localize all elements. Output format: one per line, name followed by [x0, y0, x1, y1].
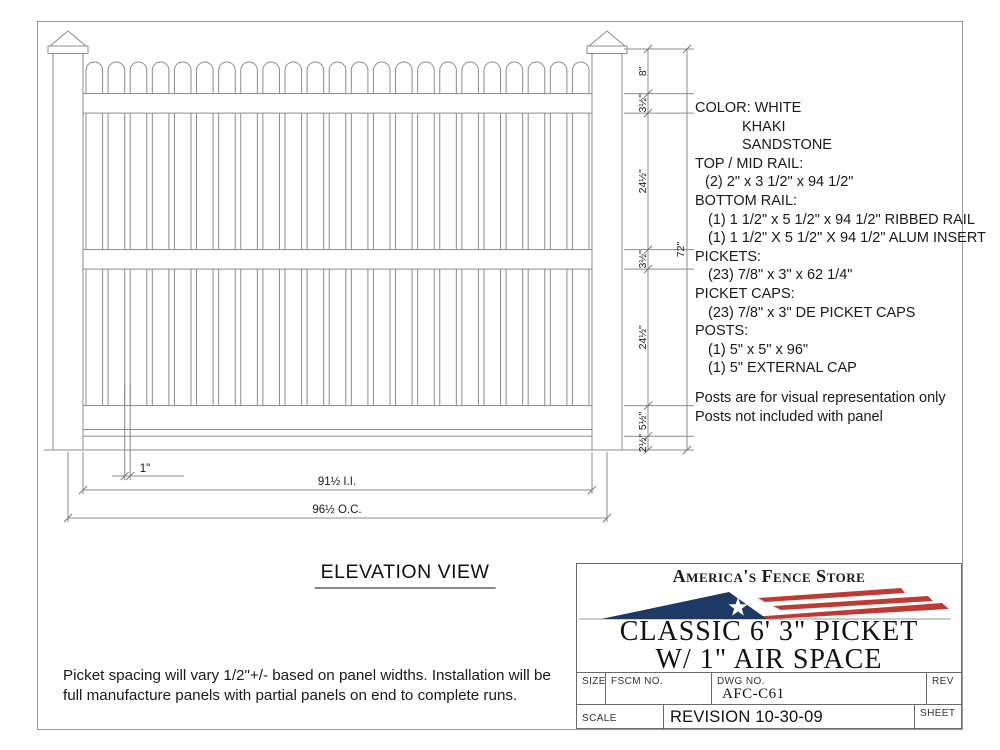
spec-line: KHAKI — [695, 118, 975, 137]
left-post-cap-icon — [50, 31, 86, 46]
dim-label: 5½" — [637, 411, 649, 430]
dwg-label: DWG NO. — [712, 673, 926, 687]
sheet-label: SHEET — [915, 705, 963, 719]
dim-label: 8" — [637, 66, 649, 76]
size-label: SIZE — [577, 673, 605, 687]
dim-label: 2½" — [637, 434, 649, 453]
scale-label: SCALE — [577, 705, 663, 724]
revision-cell: REVISION 10-30-09 — [663, 705, 914, 730]
spec-line: PICKET CAPS: — [695, 285, 975, 304]
picket — [506, 62, 523, 406]
dim-label-oc: 96½ O.C. — [312, 504, 361, 516]
picket — [440, 62, 457, 406]
spec-line: PICKETS: — [695, 248, 975, 267]
brand-name: America's Fence Store — [577, 566, 961, 587]
dwg-cell: DWG NO. AFC-C61 — [711, 673, 926, 704]
fscm-label: FSCM NO. — [606, 673, 711, 687]
spec-line: POSTS: — [695, 322, 975, 341]
spec-line: (23) 7/8" x 3" DE PICKET CAPS — [695, 304, 975, 323]
spec-line: (2) 2" x 3 1/2" x 94 1/2" — [695, 173, 975, 192]
dwg-number: AFC-C61 — [722, 686, 785, 703]
top-rail — [83, 94, 592, 114]
elevation-view-label: ELEVATION VIEW — [315, 561, 496, 589]
fscm-cell: FSCM NO. — [605, 673, 711, 704]
spec-block: COLOR: WHITEKHAKISANDSTONETOP / MID RAIL… — [695, 99, 975, 378]
picket — [396, 62, 413, 406]
dim-label: 3½" — [637, 250, 649, 269]
dim-label-inside: 91½ I.I. — [318, 476, 356, 488]
spec-line: (1) 5" EXTERNAL CAP — [695, 359, 975, 378]
drawing-sheet: 8" 3½" 24½" 3½" 24½" 5½" 2½" 72" 1" 91½ … — [0, 0, 1000, 750]
mid-rail — [83, 250, 592, 270]
spec-notes: Posts are for visual representation only… — [695, 389, 975, 426]
revision-text: REVISION 10-30-09 — [670, 708, 823, 727]
spec-line: TOP / MID RAIL: — [695, 155, 975, 174]
spec-note-line: Posts are for visual representation only — [695, 389, 975, 408]
dim-label-picket-space: 1" — [140, 463, 150, 475]
spec-line: BOTTOM RAIL: — [695, 192, 975, 211]
footnote: Picket spacing will vary 1/2"+/- based o… — [63, 666, 543, 705]
title-block-row2: SCALE REVISION 10-30-09 SHEET — [577, 704, 961, 730]
spec-line: (23) 7/8" x 3" x 62 1/4" — [695, 266, 975, 285]
right-post — [587, 31, 627, 450]
dim-label: 24½" — [637, 169, 649, 193]
left-post — [48, 31, 88, 450]
bottom-rail — [83, 406, 592, 437]
dim-label-overall: 72" — [675, 242, 687, 258]
rev-cell: REV — [926, 673, 963, 704]
spec-line: (1) 1 1/2" X 5 1/2" X 94 1/2" ALUM INSER… — [695, 229, 975, 248]
spec-line: SANDSTONE — [695, 136, 975, 155]
size-cell: SIZE — [577, 673, 605, 704]
scale-cell: SCALE — [577, 705, 663, 730]
spec-line: COLOR: WHITE — [695, 99, 975, 118]
title-block-row1: SIZE FSCM NO. DWG NO. AFC-C61 REV — [577, 672, 961, 704]
dim-label: 24½" — [637, 325, 649, 349]
rev-label: REV — [927, 673, 963, 687]
spec-line: (1) 5" x 5" x 96" — [695, 341, 975, 360]
sheet-cell: SHEET — [914, 705, 963, 730]
spec-line: (1) 1 1/2" x 5 1/2" x 94 1/2" RIBBED RAI… — [695, 211, 975, 230]
dim-label: 3½" — [637, 94, 649, 113]
footnote-line: Picket spacing will vary 1/2"+/- based o… — [63, 666, 543, 686]
spec-note-line: Posts not included with panel — [695, 408, 975, 427]
footnote-line: full manufacture panels with partial pan… — [63, 686, 543, 706]
right-post-cap-icon — [589, 31, 625, 46]
title-block: America's Fence Store CLASSIC 6' 3" PICK… — [576, 563, 962, 729]
